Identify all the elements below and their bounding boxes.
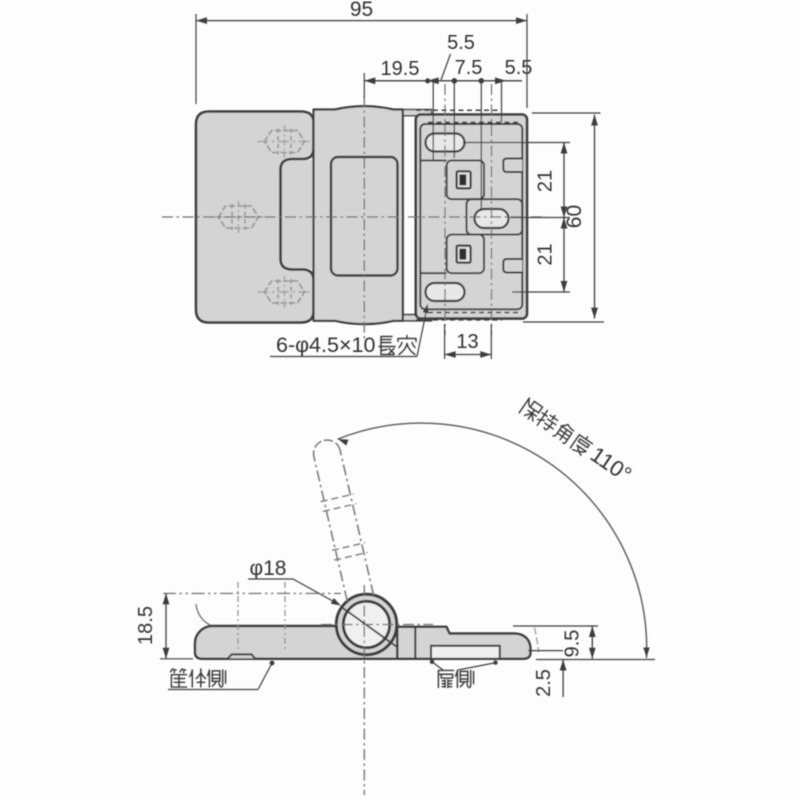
svg-text:9.5: 9.5 xyxy=(562,630,584,658)
svg-text:7.5: 7.5 xyxy=(455,57,483,79)
svg-text:5.5: 5.5 xyxy=(505,57,533,79)
svg-text:18.5: 18.5 xyxy=(135,606,157,645)
svg-text:21: 21 xyxy=(535,243,557,265)
svg-text:2.5: 2.5 xyxy=(533,669,555,697)
svg-text:19.5: 19.5 xyxy=(381,58,420,80)
svg-text:φ18: φ18 xyxy=(250,557,287,580)
svg-text:95: 95 xyxy=(350,0,373,21)
svg-text:6-φ4.5×10: 6-φ4.5×10 xyxy=(276,333,375,357)
svg-text:21: 21 xyxy=(535,170,557,192)
svg-text:13: 13 xyxy=(456,331,478,353)
svg-text:5.5: 5.5 xyxy=(447,32,475,54)
